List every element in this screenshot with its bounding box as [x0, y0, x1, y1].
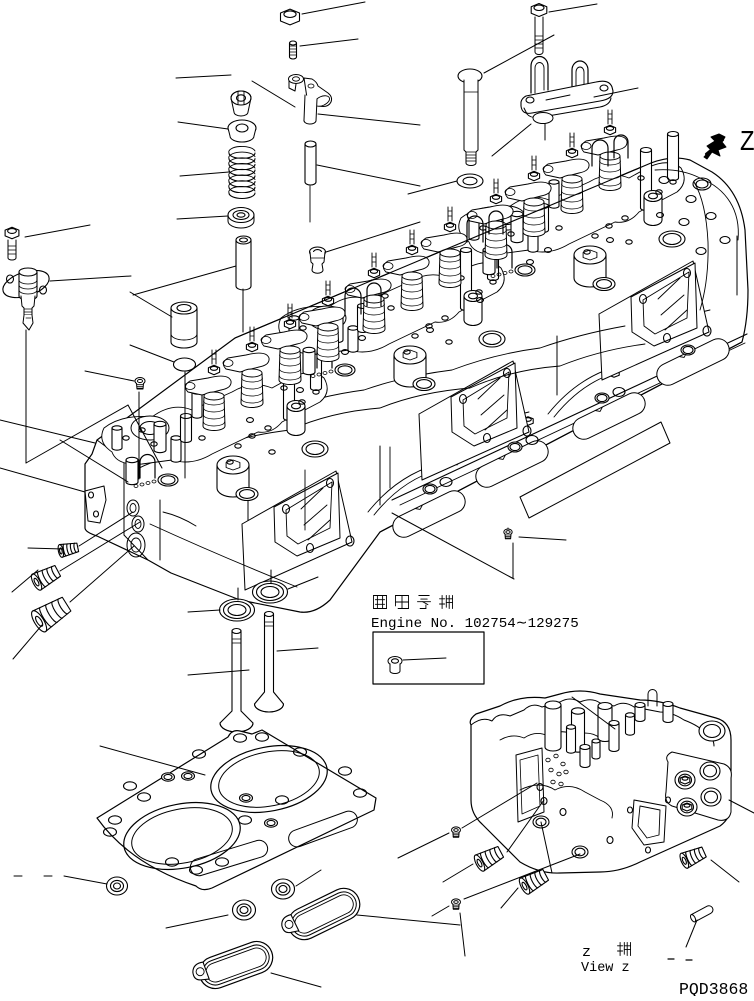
svg-text:z: z — [582, 944, 591, 961]
svg-text:View z: View z — [581, 961, 630, 976]
svg-text:PQD3868: PQD3868 — [679, 980, 748, 996]
svg-text:Z: Z — [740, 124, 754, 156]
svg-text:Engine No. 102754∼129275: Engine No. 102754∼129275 — [371, 616, 579, 632]
